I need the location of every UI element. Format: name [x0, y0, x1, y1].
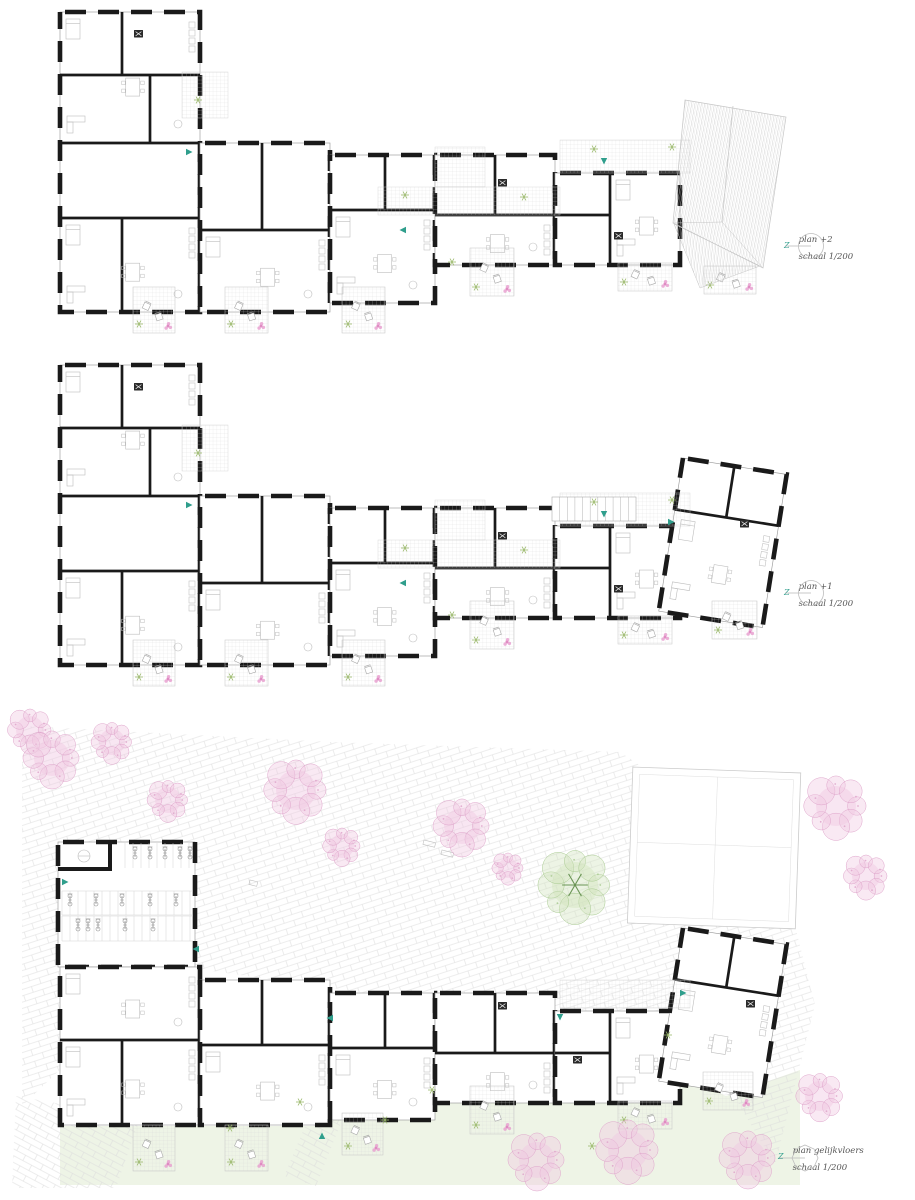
floor-plan-ground [7, 709, 887, 1191]
north-arrow-icon: Z [784, 588, 790, 597]
neighbor-roof-hatch [673, 100, 786, 288]
terrace-hatch [618, 263, 672, 291]
stove-icon [746, 1000, 755, 1008]
compass-circle-icon [784, 232, 826, 260]
north-arrow-icon: Z [784, 241, 790, 250]
terrace-hatch [342, 1113, 383, 1155]
floor-plan-plus-2 [60, 12, 786, 333]
stove-icon [614, 585, 623, 593]
stove-icon [134, 383, 143, 391]
north-arrow-icon: Z [778, 1152, 784, 1161]
plan-2-caption: Z plan +2 schaal 1/200 [784, 232, 853, 266]
terrace-hatch [342, 287, 385, 333]
terrace-hatch [470, 601, 514, 649]
terrace-hatch [225, 640, 268, 686]
stove-icon [498, 179, 507, 187]
tree-icon [843, 855, 887, 900]
stove-icon [134, 30, 143, 38]
terrace-hatch [133, 640, 175, 686]
stairs [552, 497, 636, 521]
floor-plan-plus-1 [60, 365, 787, 686]
terrace-hatch [342, 640, 385, 686]
terrace-hatch [618, 616, 672, 644]
compass-octagon-icon [778, 1143, 820, 1173]
tree-icon [804, 776, 866, 840]
stove-icon [498, 532, 507, 540]
stove-icon [498, 1002, 507, 1010]
terrace-hatch [225, 287, 268, 333]
stove-icon [573, 1056, 582, 1064]
terrace-hatch [133, 1125, 175, 1171]
terrace-hatch [133, 287, 175, 333]
bike-storage [58, 842, 195, 967]
compass-circle-icon [784, 579, 826, 607]
stove-icon [740, 520, 749, 528]
ground-plan-caption: Z plan gelijkvloers schaal 1/200 [778, 1143, 864, 1177]
terrace-hatch [225, 1125, 268, 1171]
terrace-hatch [703, 1072, 753, 1110]
floor-plan-drawing [0, 0, 915, 1200]
drawing-sheet: Z plan +2 schaal 1/200 Z plan +1 schaal … [0, 0, 915, 1200]
tree-icon [796, 1073, 843, 1121]
plan-1-caption: Z plan +1 schaal 1/200 [784, 579, 853, 613]
terrace-hatch [712, 601, 757, 639]
terrace-hatch [470, 1086, 514, 1134]
stove-icon [614, 232, 623, 240]
terrace-hatch [470, 248, 514, 296]
neighbor-building [627, 767, 800, 929]
